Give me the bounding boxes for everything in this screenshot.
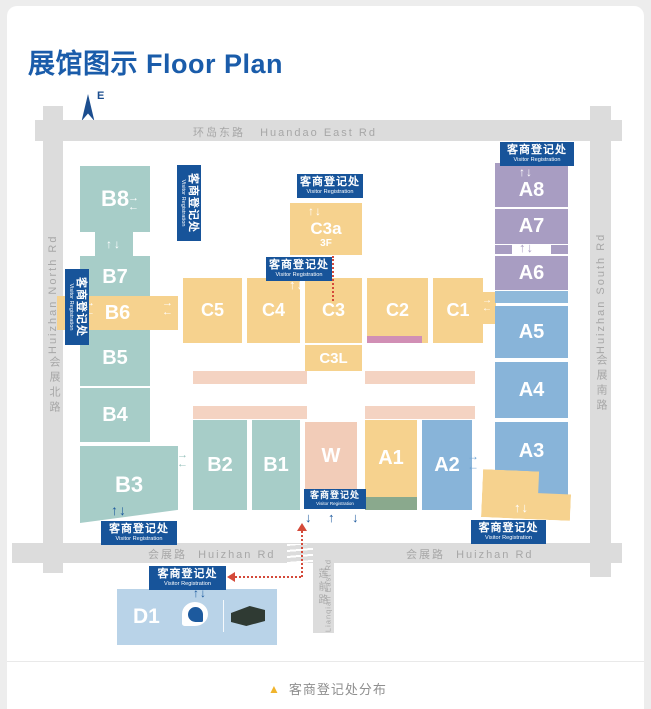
road-label-huandao: 环岛东路 Huandao East Rd bbox=[180, 124, 390, 140]
road-label-huizhan-en: Huizhan Rd bbox=[198, 549, 275, 561]
guide-path-vertical bbox=[301, 531, 303, 577]
hall-C3a-floor-label: 3F bbox=[320, 239, 332, 249]
hall-A8-label: A8 bbox=[519, 179, 545, 202]
road-label-huizhan-west: 会展路 Huizhan Rd bbox=[148, 546, 268, 562]
registration-badge-b8-zh: 客商登记处 bbox=[187, 167, 199, 239]
registration-badge-b3-zh: 客商登记处 bbox=[103, 523, 175, 535]
compass-north-arrow-icon bbox=[78, 94, 98, 121]
hall-A4: A4 bbox=[495, 362, 568, 418]
floor-plan-map: E 环岛东路 Huandao East Rd Huizhan North Rd … bbox=[0, 0, 651, 709]
entrance-arrows-a2-a3-icon: → ← bbox=[467, 451, 479, 471]
hall-A6: A6 bbox=[495, 256, 568, 290]
registration-badge-a8-zh: 客商登记处 bbox=[502, 144, 572, 156]
registration-badge-c3a-en: Visitor Registration bbox=[305, 189, 355, 195]
registration-badge-d1: 客商登记处 Visitor Registration bbox=[149, 566, 226, 590]
hall-A7-A6-tab-left bbox=[495, 245, 512, 254]
corridor-strip-upper-left bbox=[193, 371, 307, 384]
entrance-arrows-b3-b2-icon: → ← bbox=[177, 451, 188, 469]
hall-W-label: W bbox=[322, 445, 341, 468]
hall-A7-A6-tab-right bbox=[551, 245, 568, 254]
registration-badge-c3: 客商登记处 Visitor Registration bbox=[266, 257, 332, 281]
registration-badge-b6-en: Visitor Registration bbox=[68, 278, 74, 336]
registration-badge-b8-en: Visitor Registration bbox=[180, 174, 186, 232]
entrance-arrows-b3-bottom-icon: ↑↓ bbox=[111, 503, 127, 517]
hall-C3a-label: C3a bbox=[310, 220, 341, 237]
hall-C2: C2 bbox=[367, 278, 428, 343]
hall-D1-label: D1 bbox=[133, 605, 160, 629]
arrow-left-icon: ← bbox=[128, 203, 139, 212]
registration-badge-w-zh: 客商登记处 bbox=[306, 491, 364, 501]
hall-A5: A5 bbox=[495, 306, 568, 358]
entrance-arrows-a8-top-icon: ↑↓ bbox=[519, 166, 533, 178]
hall-A4-label: A4 bbox=[519, 379, 545, 402]
hall-A1: A1 bbox=[365, 420, 417, 497]
guide-arrowhead-left-icon bbox=[227, 572, 235, 582]
hall-C3L: C3L bbox=[305, 345, 362, 371]
legend: ▲ 客商登记处分布 bbox=[268, 679, 387, 698]
entrance-arrows-b6-right-icon: → ← bbox=[162, 299, 173, 317]
hall-B7: B7 bbox=[80, 256, 150, 298]
arrow-w-up-icon: ↑ bbox=[328, 511, 336, 524]
d1-logo-divider bbox=[223, 600, 224, 632]
hall-C1-label: C1 bbox=[446, 300, 469, 321]
registration-badge-a3: 客商登记处 Visitor Registration bbox=[471, 520, 546, 544]
hall-B8-B7-connector: ↑↓ bbox=[95, 232, 133, 256]
entrance-arrows-a3-annex-icon: ↑↓ bbox=[514, 501, 529, 514]
registration-badge-w-en: Visitor Registration bbox=[313, 502, 357, 507]
hall-W: W bbox=[305, 422, 357, 490]
hall-A5-label: A5 bbox=[519, 321, 545, 344]
registration-badge-c3-zh: 客商登记处 bbox=[268, 259, 330, 271]
footer-divider bbox=[7, 661, 644, 662]
registration-badge-d1-zh: 客商登记处 bbox=[151, 568, 224, 580]
hall-B8-label: B8 bbox=[101, 186, 129, 212]
entrance-arrows-a7-a6-icon: ↑↓ bbox=[519, 241, 534, 254]
hall-B5: B5 bbox=[80, 330, 150, 386]
d1-sponsor-logo-swoosh bbox=[188, 607, 203, 622]
hall-B4-label: B4 bbox=[102, 404, 128, 427]
registration-badge-a3-en: Visitor Registration bbox=[480, 535, 537, 541]
registration-badge-b6-vertical: 客商登记处 Visitor Registration bbox=[65, 269, 89, 345]
registration-badge-d1-en: Visitor Registration bbox=[158, 581, 216, 587]
hall-B1: B1 bbox=[252, 420, 300, 510]
hall-A5-upper-strip bbox=[495, 291, 568, 303]
registration-badge-b3: 客商登记处 Visitor Registration bbox=[101, 521, 177, 545]
registration-badge-w: 客商登记处 Visitor Registration bbox=[304, 489, 366, 509]
hall-A2-label: A2 bbox=[434, 454, 460, 477]
guide-path-c3a-c3 bbox=[332, 256, 334, 301]
arrow-left-icon: ← bbox=[177, 460, 188, 469]
hall-A1-green-strip bbox=[365, 497, 417, 510]
corridor-strip-lower-left bbox=[193, 406, 307, 419]
registration-badge-c3a: 客商登记处 Visitor Registration bbox=[297, 174, 363, 198]
legend-marker-icon: ▲ bbox=[268, 682, 281, 696]
hall-B6-label: B6 bbox=[105, 302, 131, 325]
hall-B7-label: B7 bbox=[102, 266, 128, 289]
arrow-left-icon: ← bbox=[467, 461, 479, 471]
hall-B3: B3 bbox=[80, 446, 178, 523]
road-label-huandao-zh: 环岛东路 bbox=[193, 127, 245, 139]
hall-C2-label: C2 bbox=[386, 300, 409, 321]
hall-C1: C1 bbox=[433, 278, 483, 343]
entrance-arrows-c3a-top-icon: ↑↓ bbox=[308, 205, 322, 217]
compass-label: E bbox=[97, 90, 104, 102]
hall-B8: B8 bbox=[80, 166, 150, 232]
registration-badge-c3a-zh: 客商登记处 bbox=[299, 176, 361, 188]
road-label-lianqian-en: Lianqian East Rd bbox=[324, 558, 333, 634]
hall-B1-label: B1 bbox=[263, 454, 289, 477]
road-label-huizhan-en2: Huizhan Rd bbox=[456, 549, 533, 561]
registration-badge-b6-zh: 客商登记处 bbox=[75, 271, 87, 343]
hall-B3-label: B3 bbox=[115, 472, 143, 498]
road-label-huizhan-north-zh: 会展北路 bbox=[46, 356, 62, 416]
registration-badge-b8-vertical: 客商登记处 Visitor Registration bbox=[177, 165, 201, 241]
crosswalk bbox=[287, 544, 313, 563]
registration-badge-b3-en: Visitor Registration bbox=[110, 536, 168, 542]
registration-badge-a8-en: Visitor Registration bbox=[509, 157, 565, 163]
entrance-arrows-c1-a5-icon: → ← bbox=[482, 297, 492, 313]
road-label-huizhan-south-en: Huizhan South Rd bbox=[595, 244, 607, 354]
hall-C2-pink-strip bbox=[367, 336, 422, 343]
hall-C5: C5 bbox=[183, 278, 242, 343]
corridor-strip-lower-right bbox=[365, 406, 475, 419]
hall-B2-label: B2 bbox=[207, 454, 233, 477]
hall-A6-label: A6 bbox=[519, 262, 545, 285]
hall-A7: A7 bbox=[495, 209, 568, 244]
road-label-huizhan-south-zh: 会展南路 bbox=[593, 354, 609, 414]
registration-badge-c3-en: Visitor Registration bbox=[274, 272, 324, 278]
hall-B2: B2 bbox=[193, 420, 247, 510]
registration-badge-a3-zh: 客商登记处 bbox=[473, 522, 544, 534]
hall-C3-label: C3 bbox=[322, 300, 345, 321]
hall-C4-label: C4 bbox=[262, 300, 285, 321]
arrow-w-down-right-icon: ↓ bbox=[352, 511, 360, 524]
arrows-b8-b7-icon: ↑↓ bbox=[106, 237, 122, 251]
hall-C5-label: C5 bbox=[201, 300, 224, 321]
road-label-huizhan-east: 会展路 Huizhan Rd bbox=[406, 546, 526, 562]
hall-A2: A2 bbox=[422, 420, 472, 510]
hall-A1-label: A1 bbox=[378, 447, 404, 470]
hall-A3-label: A3 bbox=[519, 440, 545, 463]
road-label-huizhan-zh2: 会展路 bbox=[406, 549, 445, 561]
hall-B5-label: B5 bbox=[102, 347, 128, 370]
guide-arrowhead-up-icon bbox=[297, 523, 307, 531]
corridor-strip-upper-right bbox=[365, 371, 475, 384]
arrow-left-icon: ← bbox=[482, 305, 492, 313]
guide-path-horizontal bbox=[235, 576, 301, 578]
entrance-arrows-b8-icon: → ← bbox=[128, 194, 139, 212]
d1-sponsor-logo-icon bbox=[182, 602, 208, 626]
hall-A7-label: A7 bbox=[519, 215, 545, 238]
hall-C3L-label: C3L bbox=[319, 350, 347, 367]
road-label-huandao-en: Huandao East Rd bbox=[260, 127, 377, 139]
hall-C3a: C3a 3F bbox=[290, 203, 362, 255]
road-label-huizhan-zh: 会展路 bbox=[148, 549, 187, 561]
legend-text: 客商登记处分布 bbox=[289, 679, 387, 698]
arrow-left-icon: ← bbox=[162, 308, 173, 317]
registration-badge-a8: 客商登记处 Visitor Registration bbox=[500, 142, 574, 166]
hall-B4: B4 bbox=[80, 388, 150, 442]
